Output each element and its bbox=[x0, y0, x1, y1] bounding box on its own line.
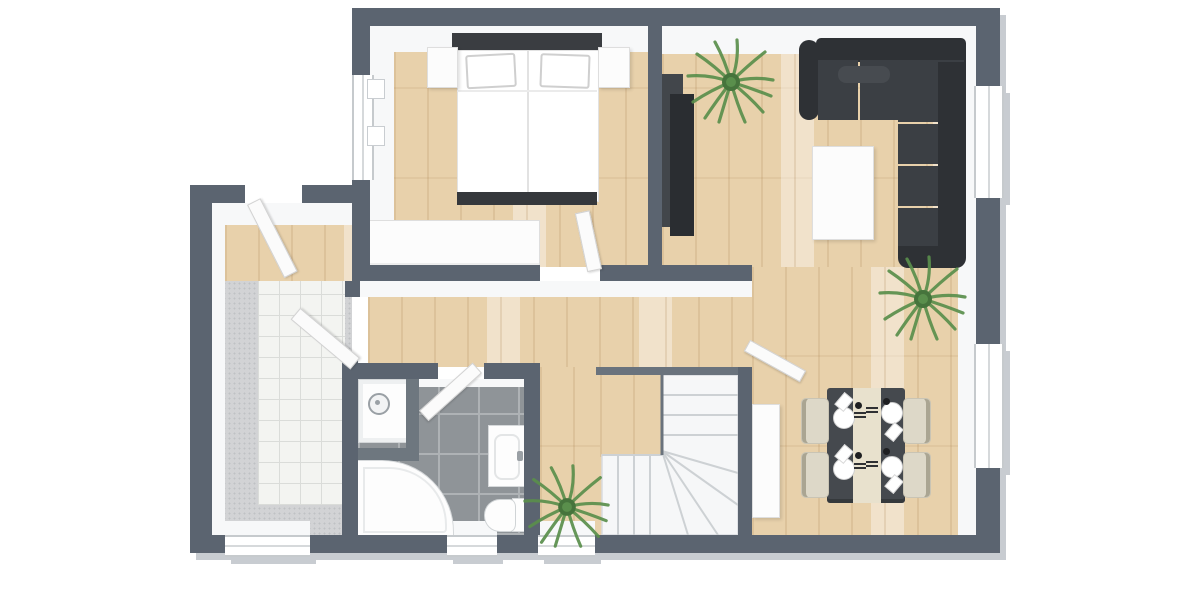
window-living-east-top bbox=[974, 86, 1004, 198]
floor-plan bbox=[0, 0, 1200, 600]
bed-headboard bbox=[452, 33, 602, 50]
cutlery-4b bbox=[866, 465, 878, 467]
sofa-seat-right-2 bbox=[898, 166, 938, 206]
window-casement-2 bbox=[367, 126, 385, 146]
wall-west-entry bbox=[190, 185, 212, 553]
bed-pillow-left bbox=[465, 53, 517, 90]
cutlery-3a bbox=[854, 463, 866, 465]
sofa-lounge-pillow bbox=[838, 66, 890, 83]
wall-bedroom-west-top bbox=[352, 8, 370, 75]
shower-head-dot bbox=[375, 400, 380, 405]
wall-staircase-north bbox=[596, 367, 744, 375]
plant-icon-living-right bbox=[873, 249, 973, 349]
glass-2 bbox=[883, 398, 890, 405]
wall-hall-living bbox=[600, 265, 752, 281]
wall-entry-north-left bbox=[190, 185, 245, 203]
nightstand-right bbox=[598, 47, 630, 88]
winder-staircase bbox=[600, 373, 740, 537]
wall-east-top bbox=[976, 8, 1000, 88]
cutlery-4a bbox=[866, 461, 878, 463]
nightstand-left bbox=[427, 47, 458, 88]
window-entry-south bbox=[225, 535, 310, 557]
plate-bottom-right bbox=[881, 456, 903, 478]
plant-icon-hallway bbox=[518, 458, 616, 556]
plate-top-right bbox=[881, 402, 903, 424]
sideboard bbox=[752, 404, 780, 518]
wall-south-2 bbox=[310, 535, 447, 553]
sofa-back-top bbox=[816, 38, 966, 62]
toilet-bowl bbox=[484, 499, 516, 532]
wall-north bbox=[352, 8, 1000, 26]
coffee-table bbox=[812, 146, 874, 240]
hallway-north-wall-face bbox=[352, 281, 752, 297]
wall-bedroom-south bbox=[352, 265, 540, 281]
wall-partition-bedroom-living bbox=[648, 26, 662, 267]
cutlery-2b bbox=[866, 411, 878, 413]
window-sill-entry bbox=[225, 521, 310, 535]
dining-chair-4 bbox=[903, 452, 931, 498]
dining-chair-2 bbox=[801, 452, 829, 498]
cutlery-1a bbox=[854, 412, 866, 414]
window-casement-1 bbox=[367, 79, 385, 99]
bed-pillow-right bbox=[539, 53, 590, 89]
cutlery-2a bbox=[866, 407, 878, 409]
sofa-armrest-left bbox=[799, 40, 819, 120]
wall-south-4 bbox=[595, 535, 1000, 553]
entry-west-wall-face bbox=[212, 203, 225, 535]
bed-foot-band bbox=[457, 192, 597, 205]
sofa-seat-right-1 bbox=[898, 124, 938, 164]
sofa-back-right bbox=[938, 62, 966, 246]
entry-north-wall-face bbox=[212, 203, 352, 225]
wall-bathroom-north-left bbox=[342, 363, 438, 379]
cutlery-3b bbox=[854, 467, 866, 469]
window-living-east-bottom bbox=[974, 344, 1004, 468]
wardrobe bbox=[366, 220, 540, 269]
glass-3 bbox=[855, 452, 862, 459]
wall-east-mid bbox=[976, 198, 1000, 346]
plant-icon-living-top bbox=[681, 32, 781, 132]
wall-staircase-east bbox=[738, 367, 752, 539]
wall-entry-hall-stub bbox=[345, 281, 360, 297]
wall-bathroom-west bbox=[342, 356, 358, 545]
bed-duvet-fold bbox=[457, 90, 597, 92]
sofa-seat-right-3 bbox=[898, 208, 938, 246]
window-bathroom-south bbox=[447, 535, 497, 557]
glass-1 bbox=[855, 402, 862, 409]
dining-chair-1 bbox=[801, 398, 829, 444]
dining-chair-3 bbox=[903, 398, 931, 444]
glass-4 bbox=[883, 448, 890, 455]
cutlery-1b bbox=[854, 416, 866, 418]
